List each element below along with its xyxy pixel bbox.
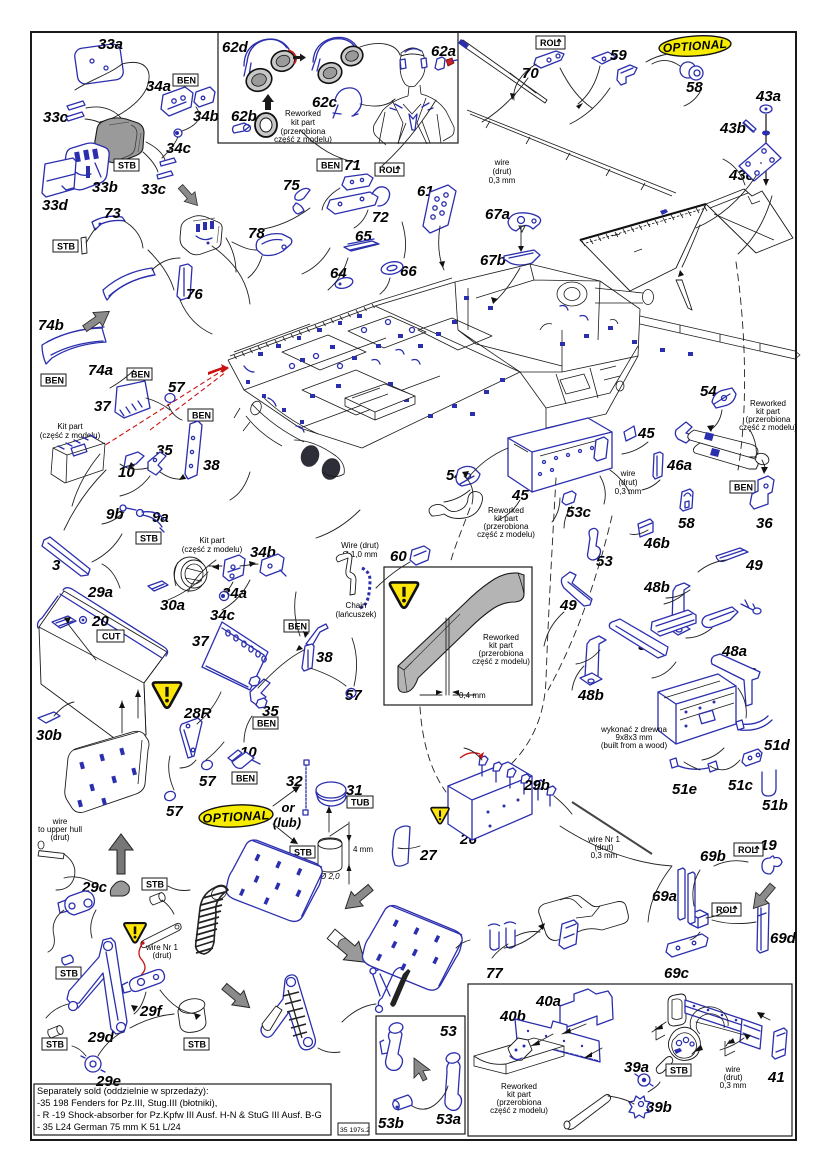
svg-text:(drut): (drut) [618,478,637,487]
svg-text:BEN: BEN [177,76,196,86]
svg-text:27: 27 [419,847,437,864]
svg-text:48b: 48b [577,687,604,704]
svg-text:36: 36 [756,515,773,532]
svg-text:33c: 33c [43,109,69,126]
svg-text:46b: 46b [643,535,670,552]
svg-text:Wire (drut): Wire (drut) [341,541,379,550]
svg-text:30b: 30b [36,727,62,744]
svg-text:Separately sold (oddzielnie w: Separately sold (oddzielnie w sprzedaży)… [37,1086,209,1096]
svg-text:or: or [282,800,296,815]
svg-text:76: 76 [186,286,203,303]
svg-text:43b: 43b [719,120,746,137]
svg-text:BEN: BEN [45,376,64,386]
svg-text:58: 58 [686,79,703,96]
svg-text:część z modelu): część z modelu) [274,135,332,144]
svg-text:74b: 74b [38,317,64,334]
svg-text:wire: wire [620,469,636,478]
svg-text:37: 37 [192,633,209,650]
svg-text:53c: 53c [566,504,592,521]
svg-text:Kit part: Kit part [199,536,225,545]
svg-text:39a: 39a [624,1059,649,1076]
svg-text:9a: 9a [152,509,169,526]
svg-text:wire: wire [494,158,510,167]
svg-text:CUT: CUT [102,632,121,642]
svg-text:67b: 67b [480,252,506,269]
svg-text:62d: 62d [222,39,249,56]
svg-text:29b: 29b [523,777,550,794]
svg-text:33b: 33b [92,179,118,196]
svg-text:59: 59 [610,47,627,64]
svg-text:ROL: ROL [540,38,560,48]
svg-text:69d: 69d [770,930,797,947]
svg-text:37: 37 [94,398,111,415]
svg-text:STB: STB [118,161,137,171]
svg-text:(drut): (drut) [152,951,171,960]
svg-text:BEN: BEN [236,774,255,784]
svg-text:część z modelu): część z modelu) [490,1106,548,1115]
svg-text:69c: 69c [664,965,690,982]
svg-text:0,4 mm: 0,4 mm [459,691,486,700]
svg-text:71: 71 [344,157,361,174]
svg-text:29d: 29d [87,1029,115,1046]
svg-text:30a: 30a [160,597,185,614]
svg-text:(built from a wood): (built from a wood) [601,741,668,750]
svg-text:(drut): (drut) [492,167,511,176]
svg-text:0,3 mm: 0,3 mm [720,1081,747,1090]
svg-text:35 197s.2: 35 197s.2 [340,1127,370,1134]
svg-text:część z modelu): część z modelu) [472,657,530,666]
svg-text:TUB: TUB [351,798,370,808]
svg-text:69a: 69a [652,888,677,905]
svg-text:STB: STB [188,1040,207,1050]
svg-text:58: 58 [678,515,695,532]
svg-text:49: 49 [559,597,577,614]
svg-text:53b: 53b [378,1115,404,1132]
svg-text:STB: STB [146,880,165,890]
svg-text:29f: 29f [139,1003,164,1020]
svg-text:51c: 51c [728,777,754,794]
svg-text:STB: STB [57,242,76,252]
svg-text:57: 57 [166,803,183,820]
svg-text:53: 53 [440,1023,457,1040]
svg-text:kit part: kit part [291,118,316,127]
svg-text:60: 60 [390,548,407,565]
svg-text:0,3 mm: 0,3 mm [615,487,642,496]
svg-text:część z modelu): część z modelu) [739,423,797,432]
svg-text:- 35 L24 German 75 mm K 51 L/2: - 35 L24 German 75 mm K 51 L/24 [37,1122,181,1132]
svg-text:57: 57 [199,773,216,790]
svg-text:STB: STB [140,534,159,544]
svg-text:BEN: BEN [734,483,753,493]
svg-text:BEN: BEN [257,719,276,729]
svg-text:51b: 51b [762,797,788,814]
svg-text:53a: 53a [436,1111,461,1128]
svg-text:73: 73 [104,205,121,222]
svg-text:46a: 46a [666,457,692,474]
svg-text:część z modelu): część z modelu) [477,530,535,539]
svg-text:40a: 40a [535,993,561,1010]
svg-text:-35 198 Fenders for Pz.III, St: -35 198 Fenders for Pz.III, Stug.III (bł… [37,1098,217,1108]
svg-text:51e: 51e [672,781,697,798]
svg-text:78: 78 [248,225,265,242]
svg-text:33a: 33a [98,36,123,53]
svg-text:ROL: ROL [379,165,399,175]
svg-text:0,3 mm: 0,3 mm [591,851,618,860]
svg-text:49: 49 [745,557,763,574]
svg-text:33c: 33c [141,181,167,198]
svg-text:20: 20 [91,613,109,630]
svg-text:33d: 33d [42,197,69,214]
svg-text:72: 72 [372,209,389,226]
svg-text:4 mm: 4 mm [353,845,373,854]
svg-text:STB: STB [46,1040,65,1050]
svg-text:34c: 34c [166,140,192,157]
svg-text:BEN: BEN [192,411,211,421]
svg-text:38: 38 [203,457,220,474]
svg-text:43a: 43a [755,88,781,105]
svg-text:(część z modelu): (część z modelu) [182,545,243,554]
svg-text:41: 41 [767,1069,785,1086]
svg-text:BEN: BEN [321,161,340,171]
svg-text:45: 45 [511,487,529,504]
svg-text:45: 45 [637,425,655,442]
svg-text:62c: 62c [312,94,338,111]
svg-text:STB: STB [670,1066,689,1076]
svg-text:(drut): (drut) [50,833,69,842]
svg-text:51d: 51d [764,737,791,754]
svg-text:77: 77 [486,965,503,982]
svg-text:0,3 mm: 0,3 mm [489,176,516,185]
svg-text:Chain: Chain [346,601,367,610]
svg-text:74a: 74a [88,362,113,379]
svg-text:STB: STB [60,969,79,979]
svg-text:67a: 67a [485,206,510,223]
svg-text:(lańcuszek): (lańcuszek) [336,610,377,619]
svg-text:38: 38 [316,649,333,666]
svg-text:BEN: BEN [131,370,150,380]
svg-text:ROL: ROL [738,845,758,855]
svg-text:- R -19 Shock-absorber for Pz.: - R -19 Shock-absorber for Pz.Kpfw III A… [37,1110,322,1120]
svg-text:34a: 34a [146,78,171,95]
svg-text:Kit part: Kit part [57,422,83,431]
svg-text:48b: 48b [643,579,670,596]
svg-text:29a: 29a [87,584,113,601]
